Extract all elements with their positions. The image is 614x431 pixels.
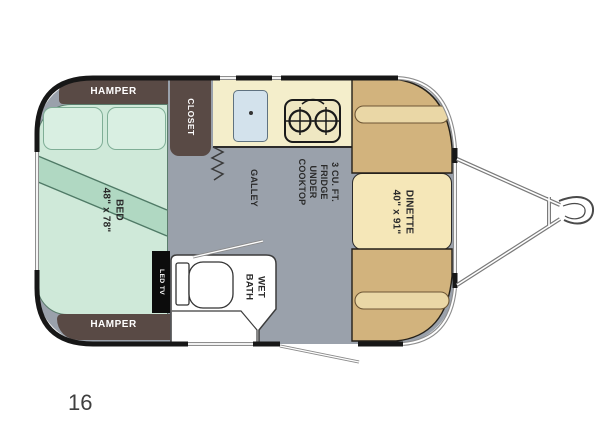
fridge-note-line: UNDER [307, 159, 318, 206]
fridge-note-line: COOKTOP [296, 159, 307, 206]
dinette-name-line: DINETTE [402, 190, 415, 235]
wet-bath-label: WET BATH [244, 274, 267, 300]
entry-door-swing [280, 346, 359, 362]
closet-label: CLOSET [185, 98, 195, 135]
pillow [107, 107, 166, 150]
wet-bath-line: WET [255, 274, 267, 300]
bed-name-line: BED [112, 188, 125, 233]
model-number: 16 [68, 390, 92, 416]
hamper-front-label: HAMPER [59, 80, 168, 104]
dinette-size-line: 40" x 91" [390, 190, 403, 235]
led-tv-label: LED TV [157, 269, 165, 295]
cooktop-icon [284, 99, 341, 143]
faucet-dot-icon [249, 111, 253, 115]
pillow [43, 107, 103, 150]
floorplan-canvas: HAMPER HAMPER CLOSET GALLEY 3 CU. FT. FR… [0, 0, 614, 431]
fridge-note-line: 3 CU. FT. [329, 159, 340, 206]
hitch-tongue [457, 159, 593, 285]
dinette-label: DINETTE 40" x 91" [390, 190, 415, 235]
fridge-note-line: FRIDGE [318, 159, 329, 206]
fridge-note-label: 3 CU. FT. FRIDGE UNDER COOKTOP [296, 159, 340, 206]
sink-icon [233, 90, 268, 142]
bed-label: BED 48" x 78" [100, 188, 125, 233]
bed-size-line: 48" x 78" [100, 188, 113, 233]
hamper-rear-label: HAMPER [57, 312, 170, 338]
wet-bath-line: BATH [244, 274, 256, 300]
galley-label: GALLEY [249, 169, 259, 207]
